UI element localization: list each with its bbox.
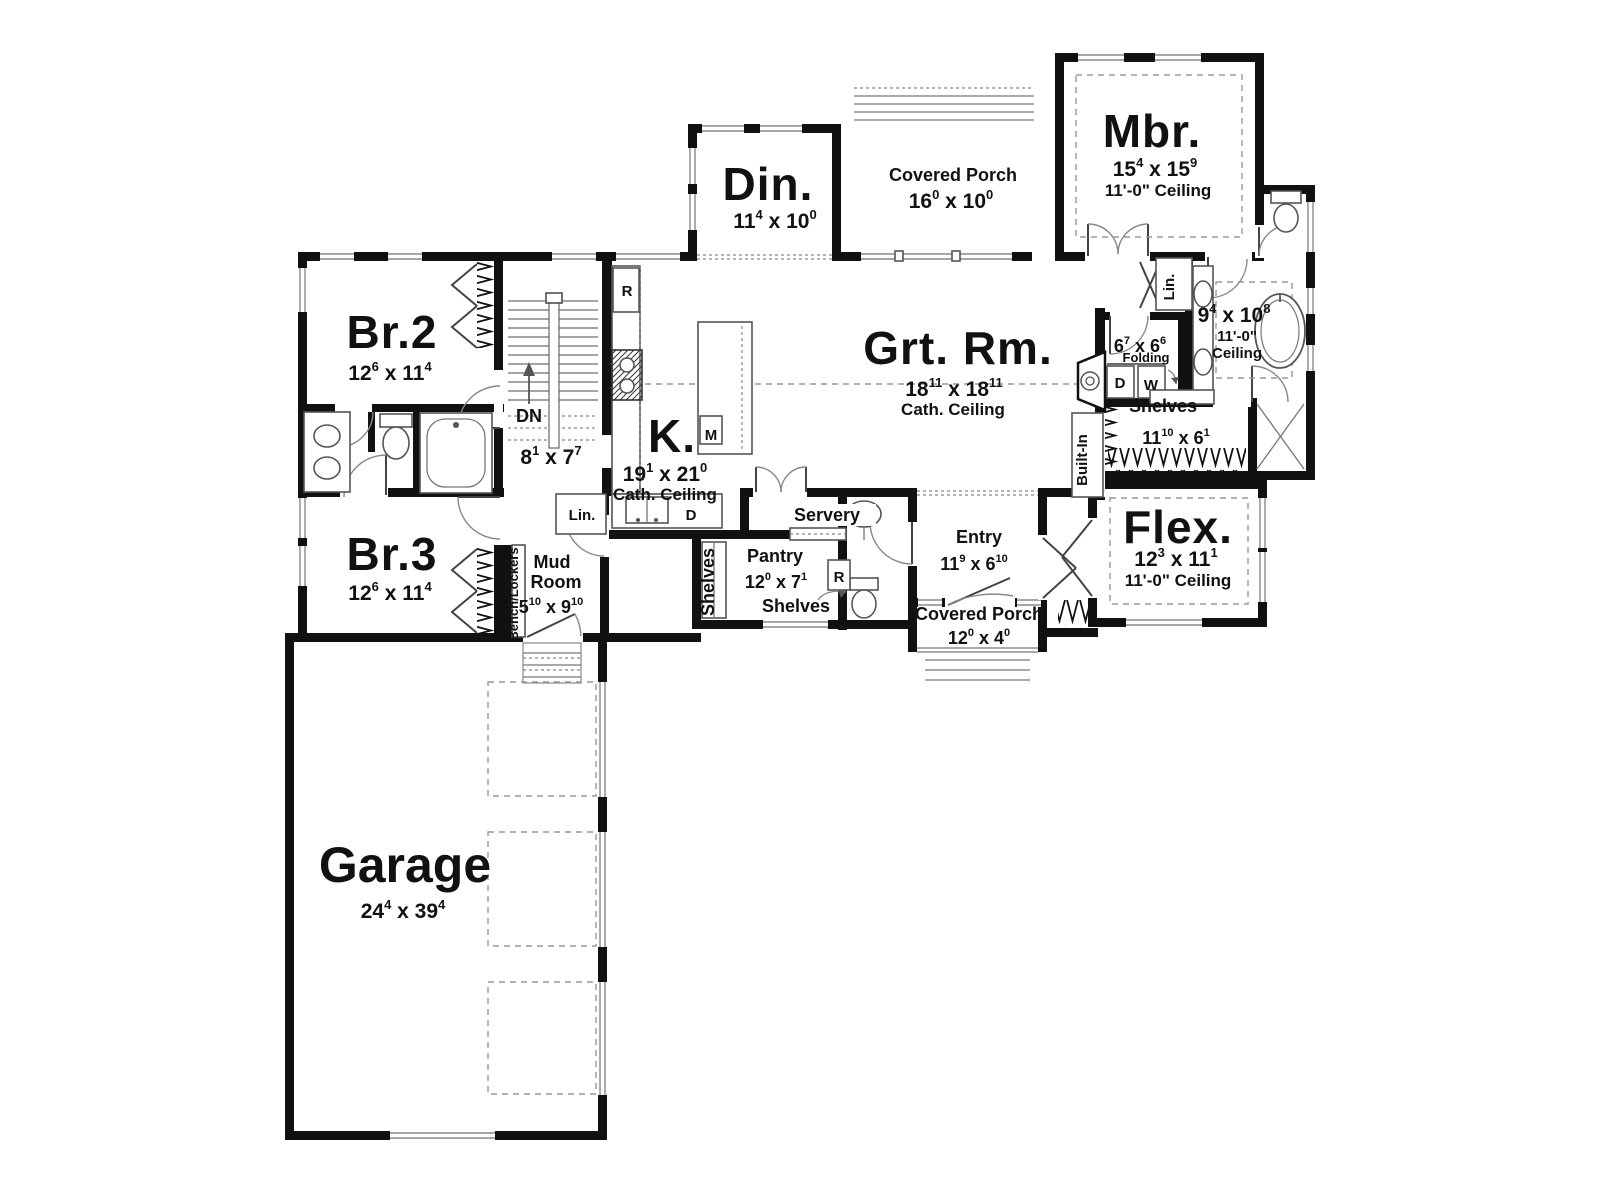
- label-wic-shelves: Shelves: [1129, 396, 1197, 416]
- label-flex-ceiling: 11'-0" Ceiling: [1125, 571, 1232, 590]
- label-mud-2: Room: [531, 572, 582, 592]
- toilet: [1274, 204, 1298, 232]
- label-mbath-dim: 94 x 108: [1198, 301, 1271, 327]
- label-flex-dim: 123 x 111: [1134, 545, 1217, 571]
- label-folding: Folding: [1123, 350, 1170, 365]
- label-grt-ceiling: Cath. Ceiling: [901, 400, 1005, 419]
- label-din-dim: 114 x 100: [733, 207, 816, 233]
- label-pantry-shelves-bottom: Shelves: [762, 596, 830, 616]
- label-hall-linen: Lin.: [1161, 274, 1178, 301]
- toilet: [852, 590, 876, 618]
- label-porch-top-name: Covered Porch: [889, 165, 1017, 185]
- toilet-tank: [1271, 191, 1301, 203]
- label-dryer: D: [1115, 375, 1126, 392]
- label-pantry-name: Pantry: [747, 546, 803, 566]
- label-built-in: Built-In: [1074, 434, 1091, 486]
- label-mbr-dim: 154 x 159: [1113, 155, 1198, 181]
- label-din-name: Din.: [723, 158, 814, 210]
- label-porch-front-dim: 120 x 40: [948, 627, 1010, 648]
- mud-garage-steps: [523, 643, 581, 683]
- label-fridge: R: [622, 283, 633, 300]
- label-mbath-ceiling2: Ceiling: [1212, 345, 1262, 362]
- label-mbr-ceiling: 11'-0" Ceiling: [1105, 181, 1212, 200]
- fireplace: [1078, 352, 1105, 410]
- label-entry-name: Entry: [956, 527, 1002, 547]
- label-br2-name: Br.2: [347, 306, 438, 358]
- sink: [1194, 349, 1212, 375]
- label-pantry-shelves-side: Shelves: [698, 548, 718, 616]
- label-washer: W: [1144, 377, 1159, 394]
- label-bench-lockers: Bench/Lockers: [506, 547, 521, 640]
- label-mbath-ceiling1: 11'-0": [1217, 328, 1257, 345]
- label-stairs-dim: 81 x 77: [520, 443, 581, 469]
- label-pantry-fridge: R: [834, 569, 845, 586]
- label-wic-dim: 1110 x 61: [1142, 427, 1209, 448]
- jack-and-jill-bath-fixtures: [304, 412, 492, 493]
- label-kitchen-name: K.: [648, 410, 696, 462]
- label-br2-dim: 126 x 114: [348, 359, 432, 385]
- label-stairs-dn: DN: [516, 406, 542, 426]
- toilet: [383, 427, 409, 459]
- label-porch-top-dim: 160 x 100: [909, 187, 994, 213]
- toilet-tank: [850, 578, 878, 590]
- label-pantry-dim: 120 x 71: [745, 571, 807, 592]
- label-servery: Servery: [794, 505, 860, 525]
- label-mud-linen: Lin.: [569, 507, 596, 524]
- porch-top-steps: [854, 88, 1034, 120]
- floor-plan-drawing: Br.2 126 x 114 Br.3 126 x 114 Garage 244…: [0, 0, 1600, 1200]
- label-microwave: M: [705, 427, 718, 444]
- label-porch-front-name: Covered Porch: [915, 604, 1043, 624]
- sink: [314, 425, 340, 447]
- label-mud-1: Mud: [534, 552, 571, 572]
- label-dishwasher: D: [686, 507, 697, 524]
- label-garage-name: Garage: [319, 837, 491, 893]
- garage-door-openings: [598, 682, 607, 1095]
- label-grt-dim: 1811 x 1811: [905, 375, 1003, 401]
- label-kitchen-dim: 191 x 210: [623, 460, 708, 486]
- toilet-tank: [380, 414, 412, 427]
- floor-plan-page: Br.2 126 x 114 Br.3 126 x 114 Garage 244…: [0, 0, 1600, 1200]
- sink: [314, 457, 340, 479]
- label-entry-dim: 119 x 610: [940, 553, 1007, 574]
- porch-window-band: [861, 251, 1012, 261]
- front-porch-steps: [917, 648, 1038, 680]
- label-br3-name: Br.3: [347, 528, 438, 580]
- label-garage-dim: 244 x 394: [361, 897, 446, 923]
- label-grt-name: Grt. Rm.: [863, 322, 1052, 374]
- label-kitchen-ceiling: Cath. Ceiling: [613, 485, 717, 504]
- label-mbr-name: Mbr.: [1103, 105, 1202, 157]
- vanity: [304, 412, 350, 492]
- label-br3-dim: 126 x 114: [348, 579, 432, 605]
